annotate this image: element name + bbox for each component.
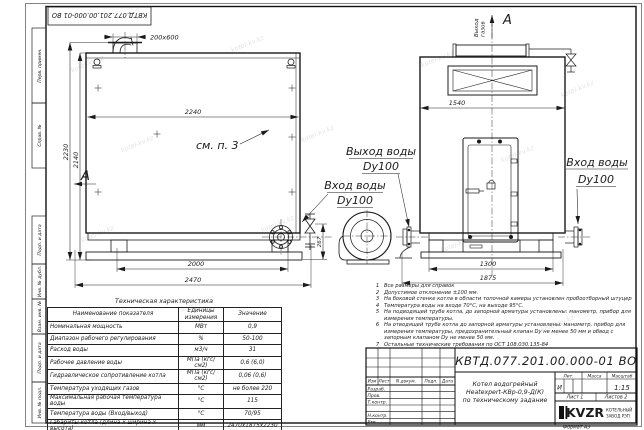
view-a-letter-left: A (80, 169, 90, 184)
inlet-valve-front (305, 214, 315, 250)
lock-icon (487, 180, 495, 189)
dim-2230: 2230 (62, 144, 70, 161)
col-header-unit: Единицы измерения (179, 308, 224, 322)
margin-label: Инв. № дубл. (37, 266, 43, 297)
notes-list: 1 Все размеры для справок 2 Допустимое о… (374, 283, 632, 348)
sheets-label: Листов 2 (604, 395, 628, 401)
tech-table-title: Техническая характеристика (47, 298, 281, 305)
margin-label: Инв. № подл. (37, 387, 43, 419)
top-stamp: КВТД.077.201.00.000-01 ВО (48, 7, 151, 25)
furnace-door (463, 138, 518, 242)
company-logo: KVZR КОТЕЛЬНЫЙ ЗАВОД РЭП (559, 405, 632, 420)
rev-col-docnum: N докум. (396, 379, 416, 385)
col-header-value: Значение (224, 308, 282, 322)
table-row: Расход воды м3/ч 31 (48, 345, 282, 357)
sig-razrab: Разраб. (368, 386, 386, 392)
product-name-line2: Heatexpert-КВр-0,9-Д(К) (466, 388, 544, 396)
margin-label: Подп. и дата (37, 224, 43, 255)
table-row: Гидравлическое сопротивление котла МПа (… (48, 370, 282, 384)
rev-col-data: Дата (441, 379, 453, 385)
louver-grille (448, 66, 537, 95)
centering-marks (95, 85, 296, 196)
lit-header: Лит. (562, 374, 573, 380)
dim-2470: 2470 (185, 276, 202, 284)
table-row: Максимальная рабочая температура воды °С… (48, 395, 282, 409)
logo-sub1: КОТЕЛЬНЫЙ (606, 408, 632, 413)
doc-number: КВТД.077.201.00.000-01 ВО (455, 354, 637, 368)
callout-labels: см. п. 3 Выход воды Dy100 Вход воды Dy10… (196, 139, 628, 207)
mass-header: Масса (588, 374, 602, 380)
table-row: Габариты котла (длина х ширина х высота)… (48, 420, 282, 430)
margin-label: Перв. примен. (37, 48, 43, 83)
scale-header: Масштаб (612, 374, 633, 380)
rev-col-izm: Изм (368, 379, 377, 385)
product-name-line1: Котел водогрейный (473, 381, 538, 388)
dim-1540: 1540 (449, 99, 466, 107)
top-stamp-text: КВТД.077.201.00.000-01 ВО (52, 11, 148, 19)
table-row: Номинальная мощность МВт 0,9 (48, 322, 282, 334)
gas-outlet-label: Выход газов (474, 17, 487, 37)
rev-col-list: Лист (378, 379, 390, 385)
dim-2000: 2000 (188, 260, 205, 268)
table-row: Рабочее давление воды МПа (кгс/см2) 0,6 … (48, 356, 282, 370)
dim-267: 267 (317, 236, 323, 247)
dim-2240: 2240 (185, 108, 202, 116)
boiler-side-view (395, 44, 582, 258)
sig-utv: Утв. (368, 420, 377, 426)
logo-kvzr: KVZR (566, 405, 604, 420)
sig-prov: Пров. (368, 393, 381, 399)
format-label: Формат А3 (563, 425, 590, 430)
logo-sub2: ЗАВОД РЭП (606, 414, 630, 419)
table-row: Температура воды (Вход/выход) °С 70/95 (48, 408, 282, 420)
margin-label: Справ. № (37, 124, 43, 147)
dim-1300: 1300 (480, 260, 497, 268)
scale-value: 1:15 (614, 384, 630, 392)
rev-col-podp: Подп. (424, 379, 437, 385)
water-inlet-side-label: Вход воды (566, 156, 628, 169)
view-a-letter-top: A (502, 13, 512, 28)
tech-table: Наименование показателя Единицы измерени… (47, 307, 282, 430)
margin-label: Взам. инв. № (37, 301, 43, 332)
margin-labels: Перв. примен. Справ. № Подп. и дата Инв.… (37, 48, 43, 418)
note-item: 6 На отводящей трубе котла до запорной а… (374, 322, 632, 342)
water-outlet-dn: Dy100 (363, 160, 399, 173)
sig-nkontr: Н.контр. (368, 413, 388, 419)
blower-fan (339, 212, 391, 264)
water-inlet-side-dn: Dy100 (578, 173, 614, 186)
see-note-label: см. п. 3 (196, 139, 239, 152)
dim-1875: 1875 (480, 274, 497, 282)
note-item: 7 Остальные технические требования по ОС… (374, 342, 632, 349)
sig-tkontr: Т.контр. (368, 400, 388, 406)
lit-value: И (557, 384, 562, 392)
col-header-name: Наименование показателя (48, 308, 179, 322)
tech-characteristics: Техническая характеристика Наименование … (47, 298, 281, 430)
table-row: Диапазон рабочего регулирования % 50-100 (48, 333, 282, 345)
water-outlet-label: Выход воды (346, 145, 416, 158)
water-inlet-front-dn: Dy100 (337, 194, 373, 207)
table-row: Температура уходящих газов °С не более 2… (48, 383, 282, 395)
dim-200x600: 200x600 (150, 34, 179, 42)
roof-valve (529, 49, 576, 72)
tech-table-header: Наименование показателя Единицы измерени… (48, 308, 282, 322)
note-item: 5 На подводящей трубе котла, до запорной… (374, 309, 632, 322)
sheet-label: Лист 1 (566, 395, 584, 401)
dim-2140: 2140 (72, 152, 80, 169)
product-name-line3: по техническому задание (463, 397, 548, 404)
drawing-sheet: kotel-kv.kz kotel-kv.kz kotel-kv.kz kote… (0, 0, 644, 430)
water-outlet-flange-side (395, 227, 420, 258)
water-inlet-front-label: Вход воды (324, 179, 386, 192)
margin-label: Подп. и дата (37, 342, 43, 373)
